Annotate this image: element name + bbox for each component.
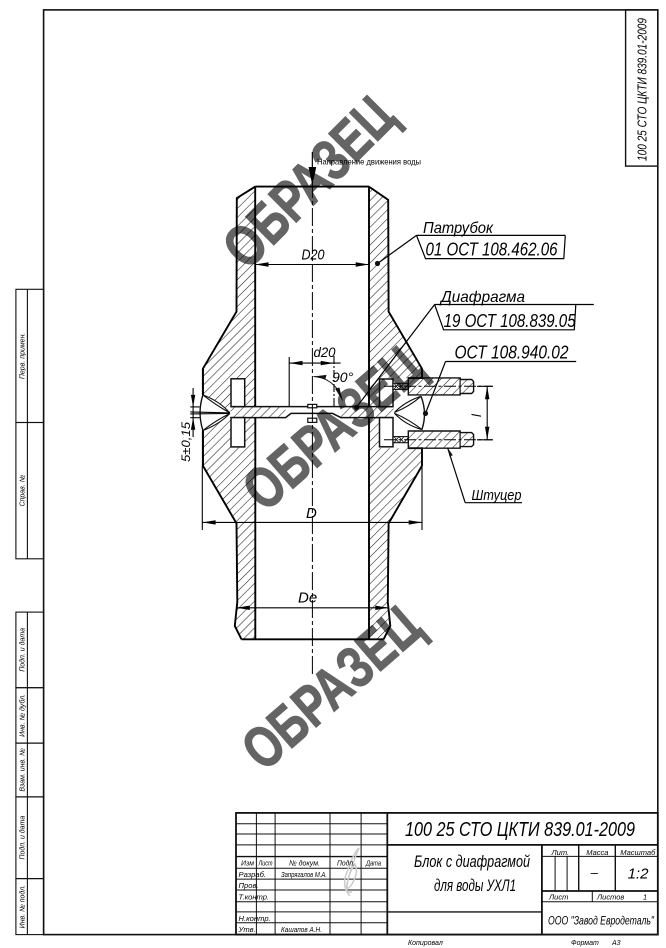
svg-text:1:2: 1:2 <box>628 866 650 883</box>
svg-text:100 25 СТО ЦКТИ 839.01-2009: 100 25 СТО ЦКТИ 839.01-2009 <box>405 819 635 841</box>
svg-text:Подп. и дата: Подп. и дата <box>19 816 27 860</box>
svg-text:5±0,15: 5±0,15 <box>179 422 193 462</box>
svg-text:Масса: Масса <box>586 848 608 857</box>
svg-text:Утв.: Утв. <box>238 925 256 934</box>
svg-text:для воды УХЛ1: для воды УХЛ1 <box>434 876 516 895</box>
svg-text:Копировал: Копировал <box>408 940 443 947</box>
svg-text:Справ. №: Справ. № <box>20 474 27 506</box>
svg-text:Лит.: Лит. <box>551 848 570 857</box>
svg-text:01 ОСТ 108.462.06: 01 ОСТ 108.462.06 <box>426 239 559 260</box>
svg-text:19 ОСТ 108.839.05: 19 ОСТ 108.839.05 <box>444 310 577 331</box>
svg-text:№ докум.: № докум. <box>289 858 320 867</box>
svg-text:D20: D20 <box>302 247 326 264</box>
svg-text:ООО "Завод Евродеталь": ООО "Завод Евродеталь" <box>548 914 655 928</box>
svg-text:De: De <box>298 590 317 607</box>
svg-text:D: D <box>306 505 317 522</box>
svg-text:Лист: Лист <box>258 858 273 867</box>
svg-text:Подп. и дата: Подп. и дата <box>19 628 27 672</box>
svg-text:Запрягалов М.А.: Запрягалов М.А. <box>281 870 327 879</box>
svg-text:1: 1 <box>643 893 647 902</box>
svg-text:Изм: Изм <box>241 858 255 867</box>
svg-text:Кашапов А.Н.: Кашапов А.Н. <box>281 925 322 934</box>
svg-text:d20: d20 <box>314 344 336 360</box>
svg-text:Дата: Дата <box>365 858 381 867</box>
svg-text:Диафрагма: Диафрагма <box>439 289 525 306</box>
svg-text:Патрубок: Патрубок <box>423 220 494 237</box>
svg-text:Пров.: Пров. <box>239 881 259 890</box>
svg-text:–: – <box>590 865 599 880</box>
svg-text:Инв. № дубл.: Инв. № дубл. <box>19 694 27 737</box>
svg-text:Перв. примен.: Перв. примен. <box>20 333 27 380</box>
svg-text:Масштаб: Масштаб <box>620 848 656 857</box>
svg-text:Листов: Листов <box>596 893 624 902</box>
svg-text:100 25 СТО ЦКТИ 839.01-2009: 100 25 СТО ЦКТИ 839.01-2009 <box>636 18 650 161</box>
svg-text:ОСТ 108.940.02: ОСТ 108.940.02 <box>455 342 570 363</box>
svg-text:Т.контр.: Т.контр. <box>239 893 270 902</box>
svg-text:Разраб.: Разраб. <box>239 870 266 879</box>
svg-text:Формат: Формат <box>571 940 599 947</box>
svg-text:Блок с диафрагмой: Блок с диафрагмой <box>414 852 530 871</box>
svg-text:А3: А3 <box>611 940 621 947</box>
svg-text:Штуцер: Штуцер <box>472 487 522 504</box>
svg-text:Лист: Лист <box>548 893 568 902</box>
svg-text:Н.контр.: Н.контр. <box>239 914 271 923</box>
svg-text:Подп.: Подп. <box>337 858 355 867</box>
svg-text:Взам. инв. №: Взам. инв. № <box>20 748 27 792</box>
svg-text:Инв. № подл.: Инв. № подл. <box>19 885 27 928</box>
